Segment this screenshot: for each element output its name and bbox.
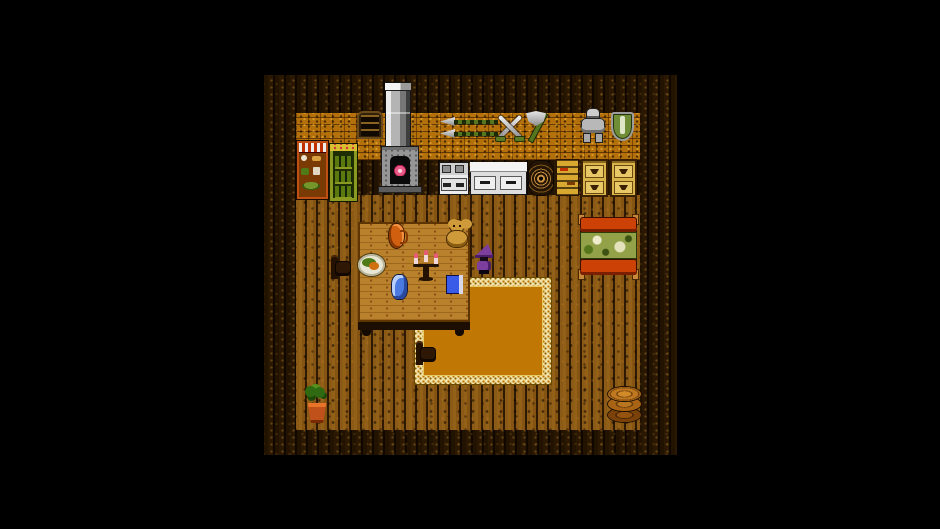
pantry-top-stripes <box>299 143 326 152</box>
chimney-cap <box>385 83 411 90</box>
stove <box>439 162 469 195</box>
wizard-feet <box>479 270 489 274</box>
chair-seat <box>336 262 350 275</box>
plant-pot <box>306 403 328 423</box>
chair <box>416 341 436 366</box>
dresser-drawer <box>585 181 604 194</box>
candle <box>424 255 428 262</box>
blue-jar <box>392 275 407 299</box>
stove-handle <box>443 183 451 187</box>
counter-top <box>470 162 527 171</box>
blue-book <box>446 275 463 294</box>
dresser-drawer <box>614 181 633 194</box>
candelabra-base <box>419 277 433 281</box>
candle-flame <box>434 253 438 258</box>
kitchen-counter <box>470 162 527 195</box>
chimney-pipe <box>386 83 410 149</box>
counter-drawer <box>474 176 496 190</box>
shield-icon <box>611 112 634 141</box>
spear-tip <box>440 129 455 138</box>
candelabra <box>412 251 440 282</box>
armor-helmet <box>587 109 599 118</box>
shelf-item <box>567 182 575 185</box>
axe-icon <box>524 111 552 144</box>
spear-icon <box>440 129 498 138</box>
sword-hilt <box>515 137 524 141</box>
food-item <box>301 168 309 175</box>
dresser <box>610 159 637 197</box>
stove-burner <box>442 165 451 173</box>
spear-icon <box>440 117 498 126</box>
drawer-handle <box>619 169 628 174</box>
jug-handle <box>400 230 408 244</box>
armor-leg <box>583 133 591 143</box>
chair-seat <box>421 348 435 361</box>
jug <box>389 224 404 248</box>
food-item <box>301 155 307 161</box>
furnace-base <box>378 186 422 193</box>
dresser <box>581 159 608 197</box>
dresser-drawer <box>585 165 604 178</box>
window-grid <box>361 115 379 136</box>
drawer-handle <box>619 185 628 190</box>
food-item <box>312 156 321 161</box>
sword-hilt <box>496 137 505 141</box>
bottle-cabinet <box>330 144 357 201</box>
player-character[interactable] <box>475 244 493 274</box>
drawer-handle <box>590 169 599 174</box>
bed-headboard <box>580 217 637 232</box>
bed <box>578 214 639 280</box>
slatted-shelf <box>556 159 579 196</box>
screenshot-stage <box>0 0 940 529</box>
teddy-eye <box>459 225 461 227</box>
dresser-drawer <box>614 165 633 178</box>
cabinet-top <box>330 144 357 151</box>
shelf-item <box>560 168 568 171</box>
log <box>608 387 641 401</box>
teddy-body <box>447 231 467 247</box>
food-orange <box>369 262 379 270</box>
spear-shaft <box>454 120 498 124</box>
food-bowl <box>302 182 320 190</box>
bed-blanket <box>580 232 637 259</box>
wall-window <box>357 111 383 139</box>
candle-flame <box>424 250 428 255</box>
counter-drawer <box>500 176 522 190</box>
candle-flame <box>414 253 418 258</box>
bottle-row <box>335 171 352 182</box>
plant-leaves <box>305 386 316 397</box>
pantry-shelf <box>297 141 328 199</box>
drawer-handle <box>590 185 599 190</box>
chimney-seam <box>386 112 410 114</box>
bottle-row <box>335 156 352 167</box>
table-edge <box>358 322 470 330</box>
chair <box>331 255 351 280</box>
food-item <box>313 167 320 175</box>
food-plate <box>358 254 385 276</box>
drawer-handle <box>480 181 490 184</box>
axe-head <box>526 111 546 126</box>
bottle-row <box>335 186 352 197</box>
drawer-handle <box>506 181 516 184</box>
armor-leg <box>595 133 603 143</box>
log-stack <box>608 387 641 425</box>
armor-icon <box>580 109 606 144</box>
shield-emblem <box>620 116 625 134</box>
fire-icon <box>394 163 406 176</box>
crossed-swords-icon <box>495 111 525 144</box>
stove-burner <box>455 165 464 173</box>
bed-footboard <box>580 259 637 275</box>
spear-tip <box>440 117 455 126</box>
stove-handle <box>456 183 464 187</box>
coiled-basket <box>529 161 553 195</box>
armor-torso <box>581 118 605 133</box>
teddy-bear <box>446 218 468 248</box>
potted-plant <box>303 386 331 426</box>
teddy-eye <box>453 225 455 227</box>
spear-shaft <box>454 132 498 136</box>
